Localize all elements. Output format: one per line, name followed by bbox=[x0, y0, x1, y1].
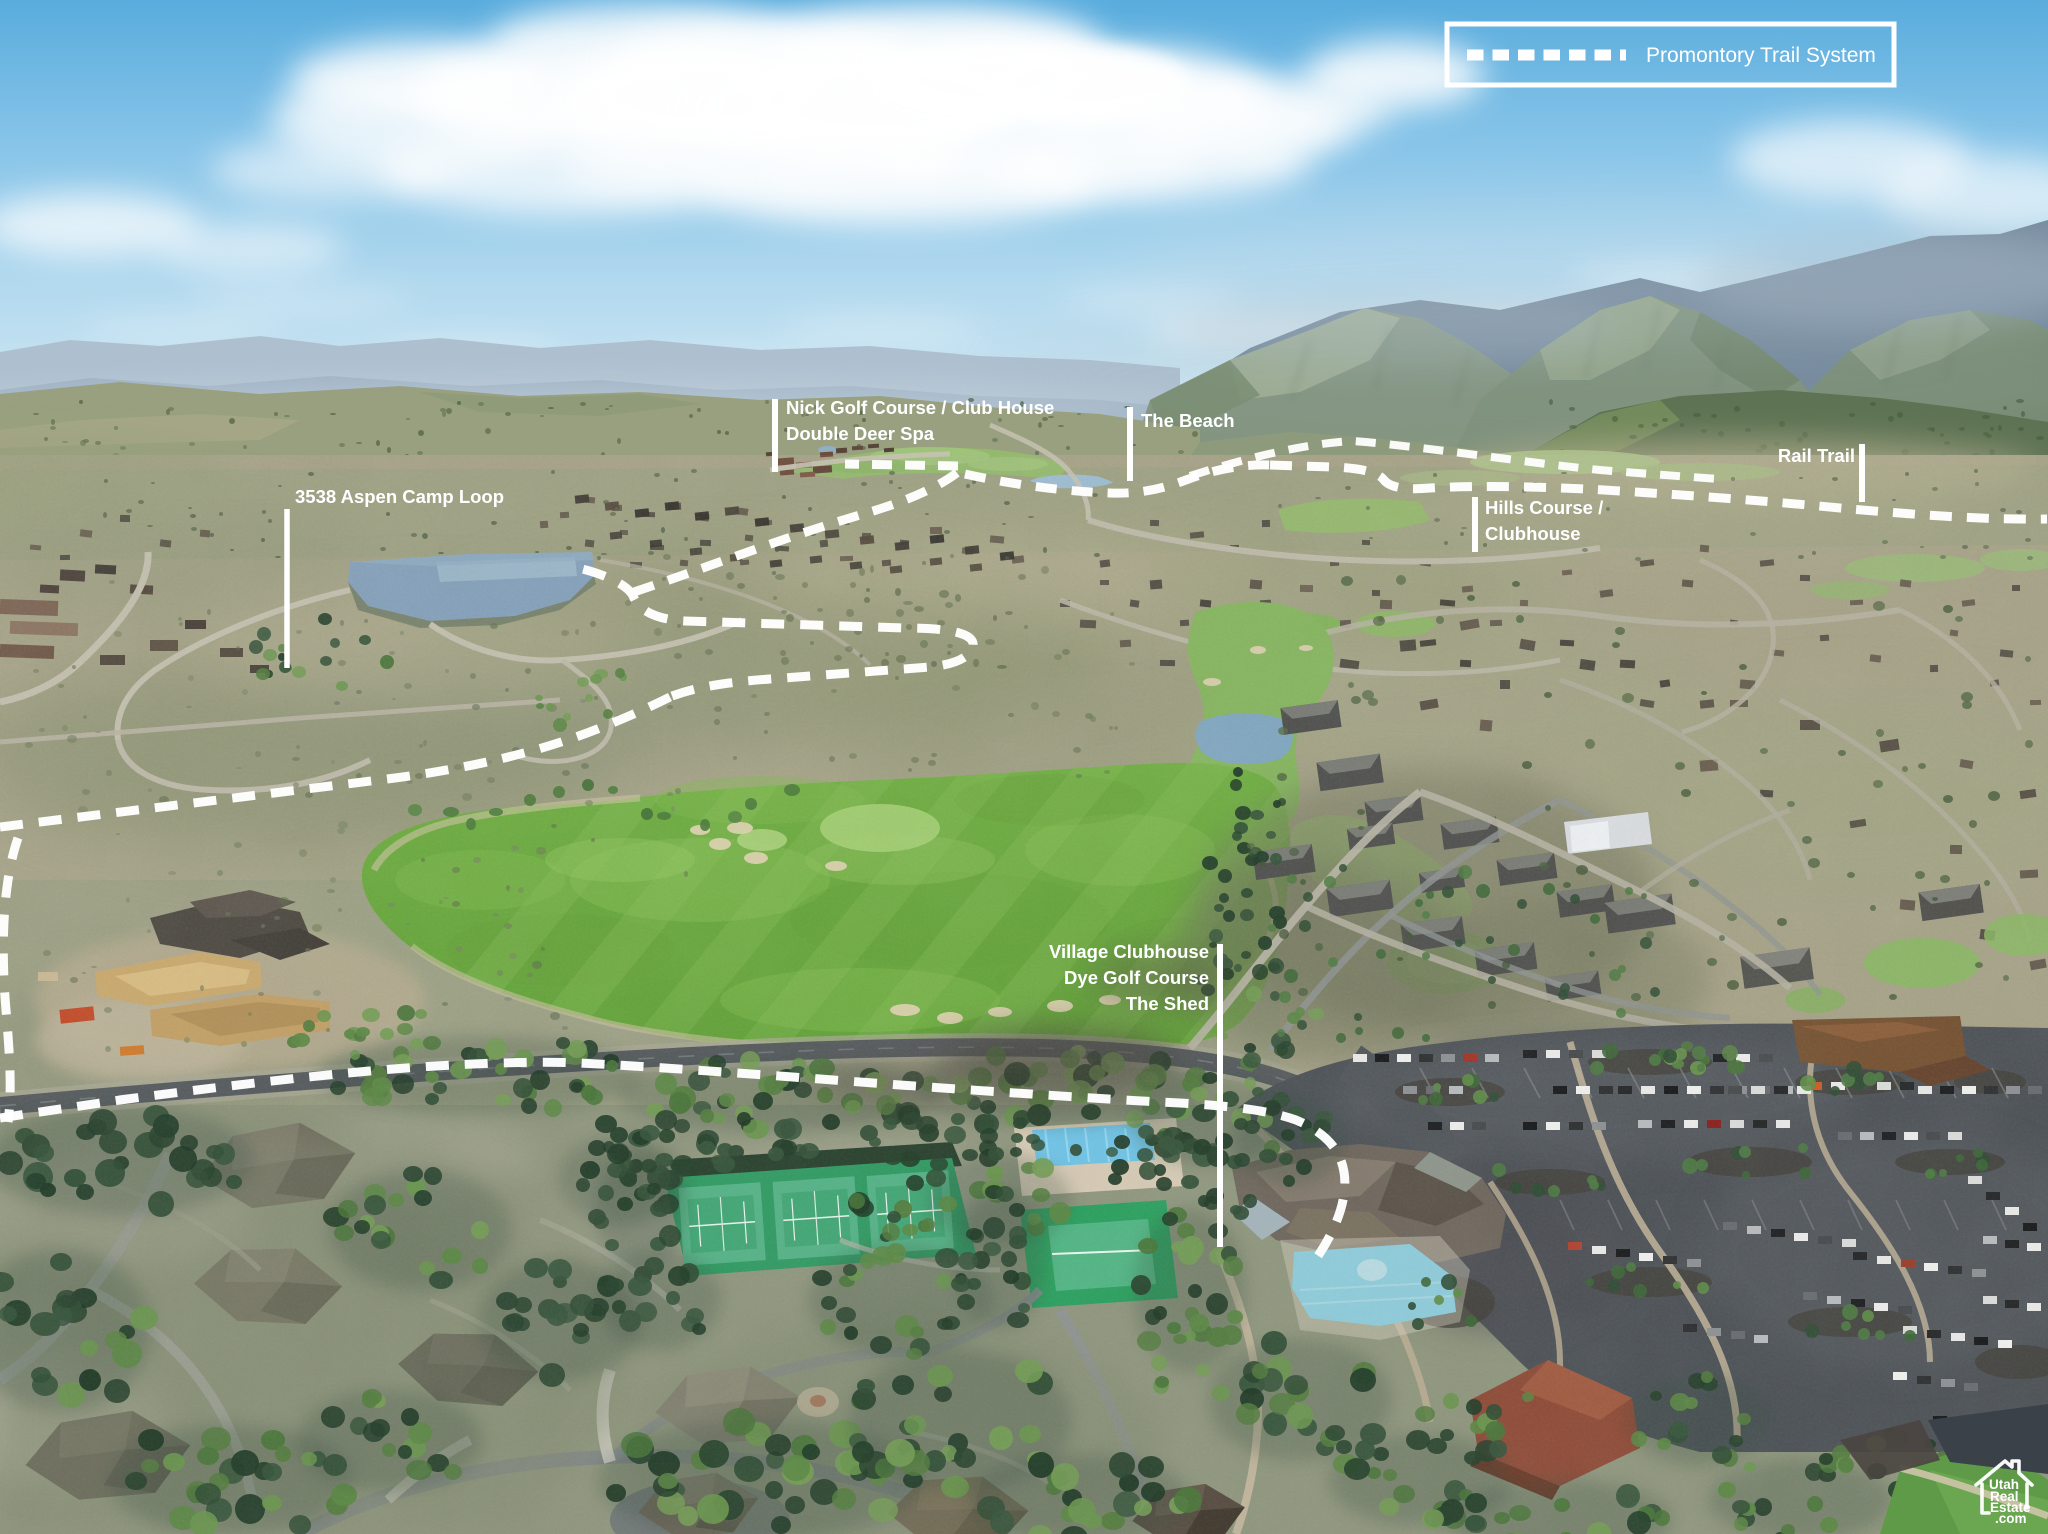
svg-text:Rail Trail: Rail Trail bbox=[1778, 445, 1855, 466]
svg-text:Dye Golf Course: Dye Golf Course bbox=[1064, 967, 1209, 988]
svg-text:Hills Course /: Hills Course / bbox=[1485, 497, 1603, 518]
svg-text:Promontory Trail System: Promontory Trail System bbox=[1646, 44, 1876, 67]
svg-text:Nick Golf Course / Club House: Nick Golf Course / Club House bbox=[786, 397, 1054, 418]
svg-text:3538 Aspen Camp Loop: 3538 Aspen Camp Loop bbox=[295, 486, 504, 507]
svg-text:Double Deer Spa: Double Deer Spa bbox=[786, 423, 935, 444]
svg-text:The Beach: The Beach bbox=[1141, 410, 1235, 431]
svg-text:Clubhouse: Clubhouse bbox=[1485, 523, 1581, 544]
svg-text:The Shed: The Shed bbox=[1126, 993, 1209, 1014]
svg-text:.com: .com bbox=[1995, 1511, 2027, 1526]
svg-text:Village Clubhouse: Village Clubhouse bbox=[1049, 941, 1209, 962]
